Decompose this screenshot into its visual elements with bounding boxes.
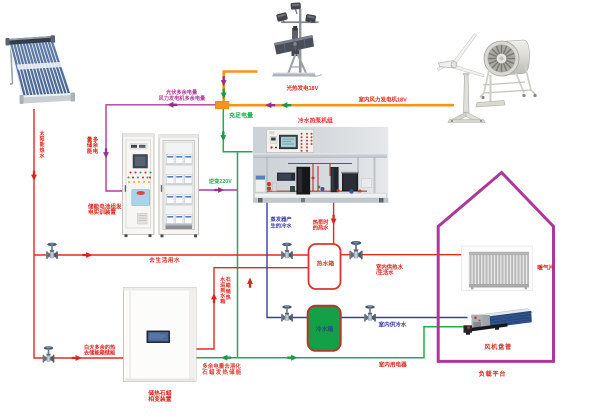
svg-text:的热水: 的热水 [313,224,330,232]
svg-text:光热发电18V: 光热发电18V [286,84,319,92]
svg-text:风机盘管: 风机盘管 [484,343,512,351]
svg-text:逆变220V: 逆变220V [209,177,232,185]
svg-text:蜡: 蜡 [226,282,231,289]
svg-text:/生活水: /生活水 [376,268,394,276]
svg-text:能: 能 [87,147,93,155]
svg-text:风力发电机多余电量: 风力发电机多余电量 [159,94,207,102]
svg-text:充足电量: 充足电量 [229,112,253,120]
svg-text:储热石蜡: 储热石蜡 [147,389,171,397]
svg-text:冷水热泵机组: 冷水热泵机组 [298,116,333,124]
svg-text:电: 电 [93,147,99,155]
svg-text:生的冷水: 生的冷水 [271,221,293,229]
svg-text:光伏多余电量: 光伏多余电量 [165,88,198,96]
svg-text:热水箱: 热水箱 [317,260,335,268]
svg-text:负载平台: 负载平台 [479,370,507,378]
svg-text:箱: 箱 [219,298,225,305]
svg-text:储能电池组发: 储能电池组发 [87,202,122,210]
svg-text:石蜡发热储能: 石蜡发热储能 [201,368,242,376]
svg-text:室内风力发电机18V: 室内风力发电机18V [359,95,408,103]
svg-text:石: 石 [225,276,231,283]
svg-text:储: 储 [226,288,231,295]
svg-text:去生活用水: 去生活用水 [149,256,180,264]
svg-text:热: 热 [226,294,231,301]
svg-text:室内用电器: 室内用电器 [379,360,407,368]
svg-text:室内供冷水: 室内供冷水 [379,321,407,329]
svg-text:水: 水 [39,153,46,160]
svg-text:电实训装置: 电实训装置 [88,208,116,216]
svg-text:暖气片: 暖气片 [537,264,554,272]
svg-text:相变装置: 相变装置 [148,395,171,403]
svg-text:蒸发器产: 蒸发器产 [271,215,293,223]
svg-text:冷水箱: 冷水箱 [316,325,334,333]
svg-text:去储能箱储能: 去储能箱储能 [84,348,116,356]
